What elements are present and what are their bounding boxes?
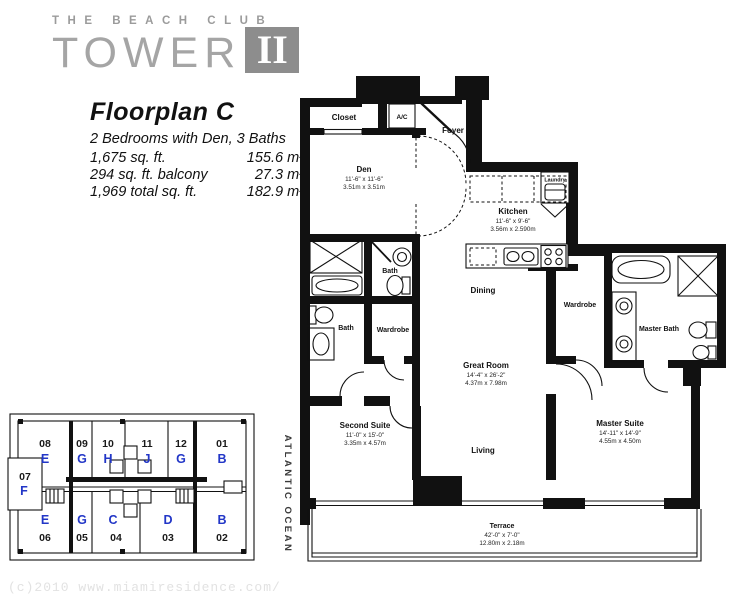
unit-number: 01	[216, 438, 228, 450]
floorplan-drawing: Closet A/C Foyer Den 11'-6" x 11'-6" 3.5…	[0, 0, 733, 600]
window-wall	[306, 501, 698, 506]
room-label-den: Den	[356, 165, 371, 174]
unit-walls	[300, 76, 726, 525]
unit-number: 09	[76, 438, 88, 450]
room-label-great-room: Great Room	[463, 361, 509, 370]
room-dims-ft: 11'-6" x 11'-6"	[345, 176, 383, 183]
unit-letter: B	[217, 452, 226, 466]
room-dims-m: 3.35m x 4.57m	[344, 440, 386, 447]
room-dims-m: 4.37m x 7.98m	[465, 380, 507, 387]
unit-number: 03	[162, 532, 174, 544]
unit-letter: B	[217, 513, 226, 527]
room-labels: Closet A/C Foyer Den 11'-6" x 11'-6" 3.5…	[332, 113, 679, 547]
unit-letter: G	[77, 452, 87, 466]
room-label-living: Living	[471, 446, 495, 455]
unit-number: 04	[110, 532, 122, 544]
unit-letter: H	[103, 452, 112, 466]
room-dims-ft: 42'-0" x 7'-0"	[484, 532, 519, 539]
room-label-bath-upper: Bath	[382, 268, 398, 275]
unit-number: 12	[175, 438, 187, 450]
room-label-bath-lower: Bath	[338, 325, 354, 332]
copyright-watermark: (c)2010 www.miamiresidence.com/	[8, 580, 281, 595]
room-label-foyer: Foyer	[442, 126, 464, 135]
room-dims-m: 4.55m x 4.50m	[599, 438, 641, 445]
atlantic-ocean-label: ATLANTIC OCEAN	[282, 435, 293, 554]
unit-number: 06	[39, 532, 51, 544]
room-label-master-suite: Master Suite	[596, 419, 644, 428]
unit-number: 02	[216, 532, 228, 544]
room-label-ac: A/C	[396, 114, 407, 121]
room-label-kitchen: Kitchen	[498, 207, 527, 216]
unit-number: 08	[39, 438, 51, 450]
unit-letter: J	[144, 452, 151, 466]
unit-letter: F	[20, 484, 28, 498]
room-dims-m: 12.80m x 2.18m	[479, 540, 524, 547]
key-plan: 08 E 09 G 10 H 11 J 12 G 01 B 07 F E 06 …	[8, 414, 254, 560]
room-label-closet: Closet	[332, 113, 357, 122]
room-dims-m: 3.56m x 2.590m	[490, 226, 535, 233]
unit-letter: D	[163, 513, 172, 527]
room-label-terrace: Terrace	[490, 523, 515, 530]
unit-number: 07	[19, 471, 31, 483]
room-label-wardrobe-second: Wardrobe	[377, 327, 410, 334]
unit-letter: G	[176, 452, 186, 466]
room-label-dining: Dining	[471, 286, 496, 295]
room-dims-ft: 11'-6" x 9'-6"	[496, 218, 531, 225]
room-dims-ft: 14'-4" x 26'-2"	[467, 372, 506, 379]
unit-letter: E	[41, 452, 49, 466]
unit-letter: E	[41, 513, 49, 527]
unit-number: 11	[141, 438, 152, 450]
unit-number: 05	[76, 532, 88, 544]
room-label-second-suite: Second Suite	[340, 421, 391, 430]
room-dims-ft: 14'-11" x 14'-9"	[599, 430, 641, 437]
unit-letter: C	[108, 513, 117, 527]
room-dims-ft: 11'-0" x 15'-0"	[346, 432, 384, 439]
room-label-laundry: Laundry	[544, 178, 565, 184]
room-dims-m: 3.51m x 3.51m	[343, 184, 385, 191]
unit-number: 10	[102, 438, 114, 450]
room-label-wardrobe-master: Wardrobe	[564, 302, 597, 309]
room-label-master-bath: Master Bath	[639, 326, 679, 333]
unit-letter: G	[77, 513, 87, 527]
